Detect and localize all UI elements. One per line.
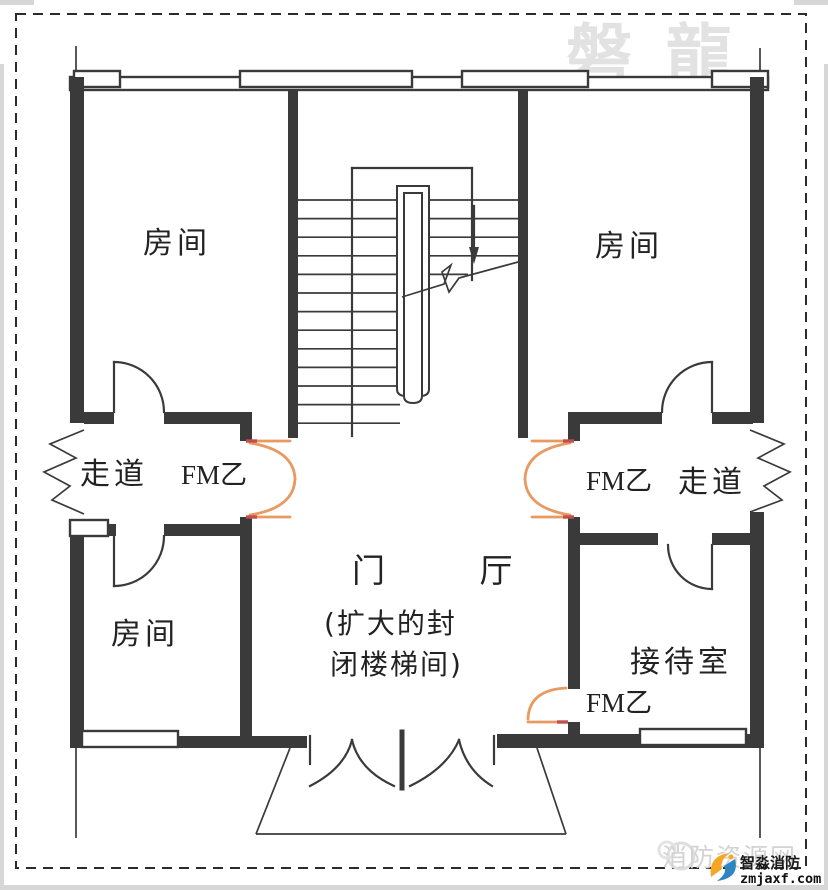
- wall-break-left: [44, 430, 84, 514]
- wall-break-right: [750, 430, 790, 512]
- label-room-top-right: 房间: [595, 229, 663, 264]
- fire-door-reception: [528, 688, 568, 722]
- door-room-top-right: [662, 362, 712, 412]
- label-hall-sub1: (扩大的封: [324, 607, 457, 640]
- door-reception-top: [668, 545, 712, 589]
- label-fire-door-reception: FM乙: [586, 688, 652, 718]
- label-room-bottom-left: 房间: [111, 617, 179, 652]
- floor-plan: 磐龍: [0, 0, 828, 890]
- entrance-steps: [256, 748, 566, 834]
- entrance-doors: [310, 732, 494, 788]
- fire-door-left: [246, 441, 295, 517]
- label-reception: 接待室: [630, 645, 732, 680]
- stair-handrail: [397, 186, 429, 403]
- construction-lines: [76, 46, 760, 838]
- label-corridor-left: 走道: [80, 457, 148, 492]
- logo-name: 智淼消防: [740, 854, 800, 872]
- room-top-left-wall: [84, 412, 252, 441]
- bottom-walls: [70, 729, 754, 748]
- label-hall-title: 门 厅: [352, 551, 555, 590]
- door-room-top-left: [114, 362, 164, 412]
- label-fire-door-left: FM乙: [181, 460, 247, 490]
- room-top-right-wall: [568, 412, 753, 441]
- label-corridor-right: 走道: [678, 465, 746, 500]
- room-bottom-left-wall: [70, 520, 240, 536]
- staircase: [298, 168, 518, 436]
- floor-plan-page: 磐龍: [0, 0, 828, 890]
- reception-walls: [580, 533, 753, 545]
- label-hall-sub2: 闭楼梯间): [330, 648, 463, 681]
- label-room-top-left: 房间: [143, 226, 211, 261]
- fire-door-right: [525, 441, 574, 517]
- logo-domain: zmjaxf.com: [740, 871, 821, 887]
- label-fire-door-right: FM乙: [586, 466, 652, 496]
- page-edges: [0, 0, 828, 890]
- door-room-bottom-left: [114, 536, 164, 586]
